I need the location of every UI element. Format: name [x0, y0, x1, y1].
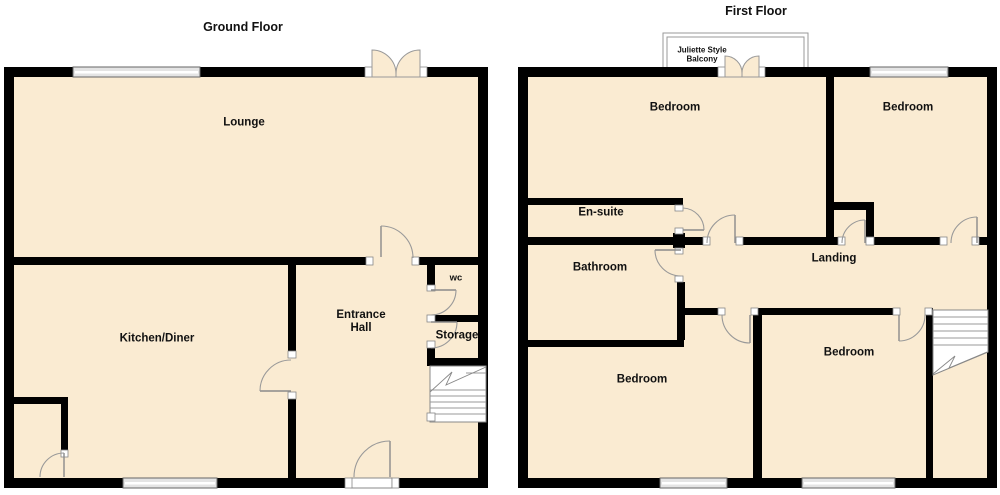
- door-jamb: [675, 228, 683, 234]
- wall-bedroom-divider: [753, 308, 762, 488]
- wall-bedroom4-top: [751, 308, 893, 315]
- stair-newel: [427, 413, 435, 421]
- wall-wc-storage: [427, 315, 488, 322]
- wall: [987, 67, 997, 488]
- door-jamb: [838, 237, 845, 245]
- wall-landing: [742, 237, 845, 245]
- door-jamb: [288, 392, 296, 399]
- door-jamb: [365, 67, 372, 77]
- wall: [4, 478, 488, 488]
- door-jamb: [675, 205, 683, 211]
- door-jamb: [412, 257, 419, 265]
- door-jamb: [866, 237, 874, 245]
- room-label-en-suite: En-suite: [578, 207, 623, 220]
- door-jamb: [703, 237, 710, 245]
- window-glass: [804, 482, 893, 485]
- french-door-leaf: [372, 50, 396, 77]
- wall: [518, 67, 528, 488]
- wall-kitchen-hall: [288, 257, 296, 352]
- room-label-bathroom: Bathroom: [573, 262, 627, 275]
- first-floor-title: First Floor: [725, 4, 787, 18]
- wall-bedroom3-top: [677, 308, 718, 315]
- wall-lounge-divider: [4, 257, 373, 265]
- door-jamb: [392, 478, 399, 488]
- window-glass: [662, 482, 725, 485]
- ground-floor-stairs: [427, 366, 486, 422]
- door-jamb: [893, 308, 900, 315]
- door-jamb: [736, 237, 743, 245]
- door-jamb: [427, 315, 435, 322]
- door-jamb: [345, 478, 352, 488]
- wall: [518, 67, 718, 77]
- door-jamb: [751, 308, 758, 315]
- room-label-storage: Storage: [436, 330, 479, 343]
- room-label-entrance-hall: Entrance Hall: [325, 309, 397, 335]
- wall-landing: [685, 237, 705, 245]
- wall-kitchen-hall: [288, 398, 296, 488]
- wall: [478, 67, 488, 488]
- wall: [4, 67, 14, 488]
- room-label-bedroom-top-right: Bedroom: [883, 102, 933, 115]
- door-jamb: [925, 308, 932, 315]
- door-jamb: [420, 67, 427, 77]
- wall-block: [673, 233, 685, 248]
- wall-closet: [4, 397, 68, 404]
- room-label-bedroom-top-left: Bedroom: [650, 102, 700, 115]
- balcony-label: Juliette Style Balcony: [675, 46, 729, 63]
- door-jamb: [718, 308, 725, 315]
- window-glass: [75, 71, 198, 74]
- door-jamb: [288, 351, 296, 358]
- ground-floor-area: [9, 71, 483, 483]
- room-label-wc: wc: [450, 274, 463, 285]
- wall-bathroom-bottom: [518, 340, 684, 347]
- french-door-leaf: [396, 50, 420, 77]
- wall-ensuite-top: [518, 198, 683, 205]
- door-jamb: [972, 237, 979, 245]
- ground-floor-title: Ground Floor: [203, 20, 283, 34]
- door-jamb: [427, 341, 435, 348]
- floorplan-canvas: Ground Floor Lounge Kitchen/Diner Entran…: [0, 0, 1000, 495]
- door-jamb: [366, 257, 373, 265]
- wall-lounge-divider: [412, 257, 488, 265]
- room-label-bedroom-bottom-right: Bedroom: [824, 347, 874, 360]
- window-glass: [125, 482, 215, 485]
- room-label-lounge: Lounge: [223, 117, 265, 130]
- wall-landing: [873, 237, 947, 245]
- wall-stairs: [926, 308, 933, 488]
- door-jamb: [675, 276, 683, 282]
- door-jamb: [718, 67, 725, 77]
- wall-wc: [427, 265, 435, 285]
- room-label-kitchen-diner: Kitchen/Diner: [120, 333, 195, 346]
- door-jamb: [675, 248, 683, 254]
- window-glass: [872, 71, 946, 74]
- front-door-threshold: [351, 478, 392, 488]
- room-label-landing: Landing: [812, 253, 857, 266]
- wall-bedroom-divider: [826, 67, 834, 244]
- floorplan-drawing: [0, 0, 1000, 495]
- room-label-bedroom-bottom-left: Bedroom: [617, 374, 667, 387]
- wall-landing: [518, 237, 673, 245]
- door-jamb: [940, 237, 947, 245]
- wall-landing: [979, 237, 987, 245]
- wall-closet: [61, 397, 68, 450]
- wall-storage-stairs: [427, 358, 488, 366]
